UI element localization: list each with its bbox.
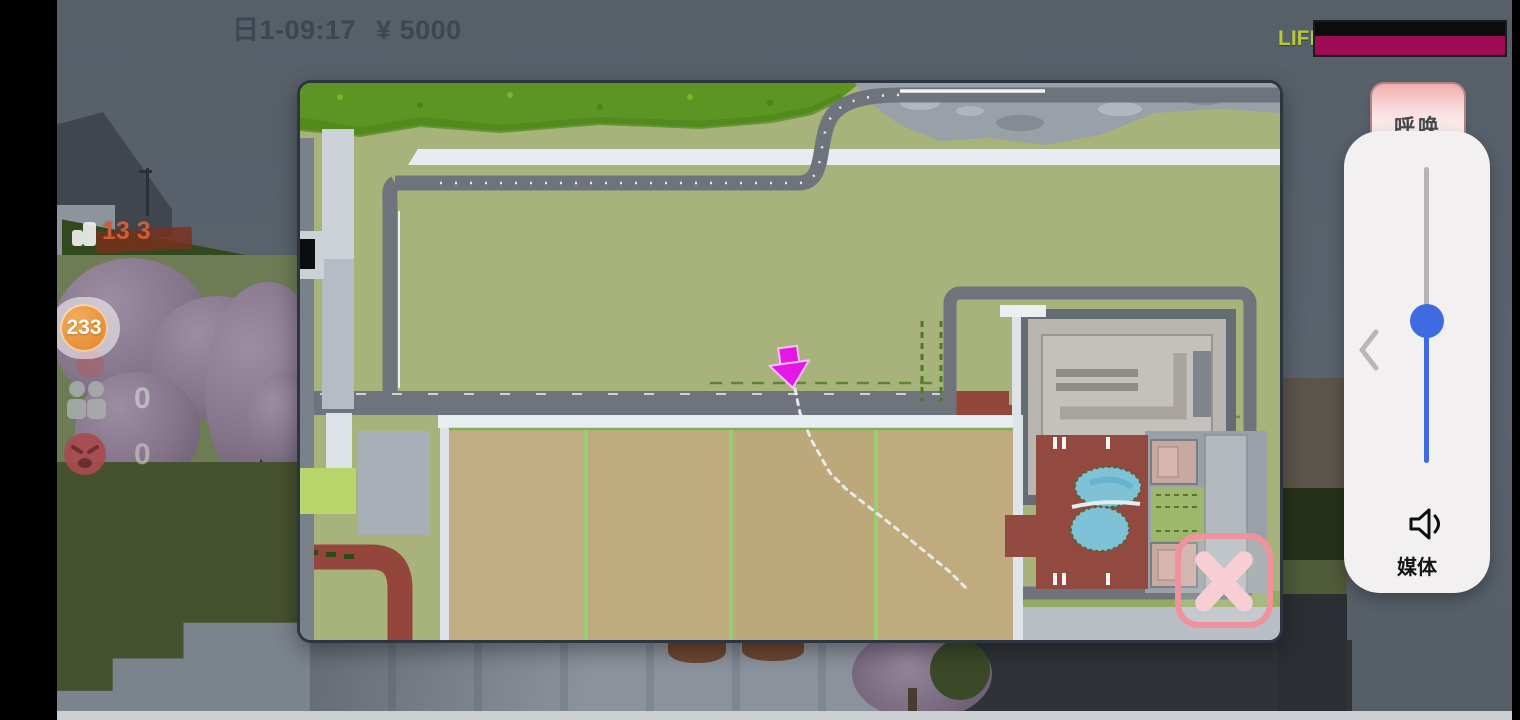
badge-circle: 233 — [60, 304, 108, 352]
status-bar: 日1-09:17¥ 5000 — [232, 8, 482, 47]
life-bar-fill — [1315, 36, 1505, 55]
terrain-band — [1277, 488, 1347, 563]
building-icon — [70, 218, 104, 252]
tree-foliage — [930, 640, 990, 700]
terrain-band — [1277, 594, 1347, 720]
x-icon — [1181, 539, 1267, 622]
speaker-icon — [1405, 504, 1449, 544]
minimap-close-button[interactable] — [1175, 533, 1273, 628]
life-bar — [1313, 20, 1507, 57]
media-label: 媒体 — [1344, 551, 1490, 580]
street-lamp-arm — [139, 170, 152, 173]
letterbox-left — [0, 0, 57, 720]
status-money: ¥ 5000 — [376, 15, 462, 45]
anger-count: 0 — [134, 438, 151, 472]
floor-strip — [57, 711, 1512, 720]
sign-number: 13 3 — [102, 217, 151, 246]
chevron-left-icon[interactable] — [1356, 326, 1382, 374]
street-lamp — [146, 168, 149, 216]
people-count: 0 — [134, 382, 151, 416]
badge-count: 233 — [66, 316, 101, 340]
volume-slider-fill — [1424, 321, 1429, 463]
minimap-svg — [300, 83, 1280, 640]
status-daytime: 日1-09:17 — [232, 15, 356, 45]
player-count-badge[interactable]: 233 — [50, 297, 120, 359]
letterbox-right — [1512, 0, 1520, 720]
minimap-crop-fields — [438, 415, 1023, 640]
minimap[interactable] — [297, 80, 1283, 643]
terrain-band — [1277, 378, 1347, 490]
volume-slider-thumb[interactable] — [1410, 304, 1444, 338]
people-icon — [64, 380, 110, 420]
terrain-band — [1277, 560, 1347, 596]
angry-face-icon — [62, 432, 108, 476]
